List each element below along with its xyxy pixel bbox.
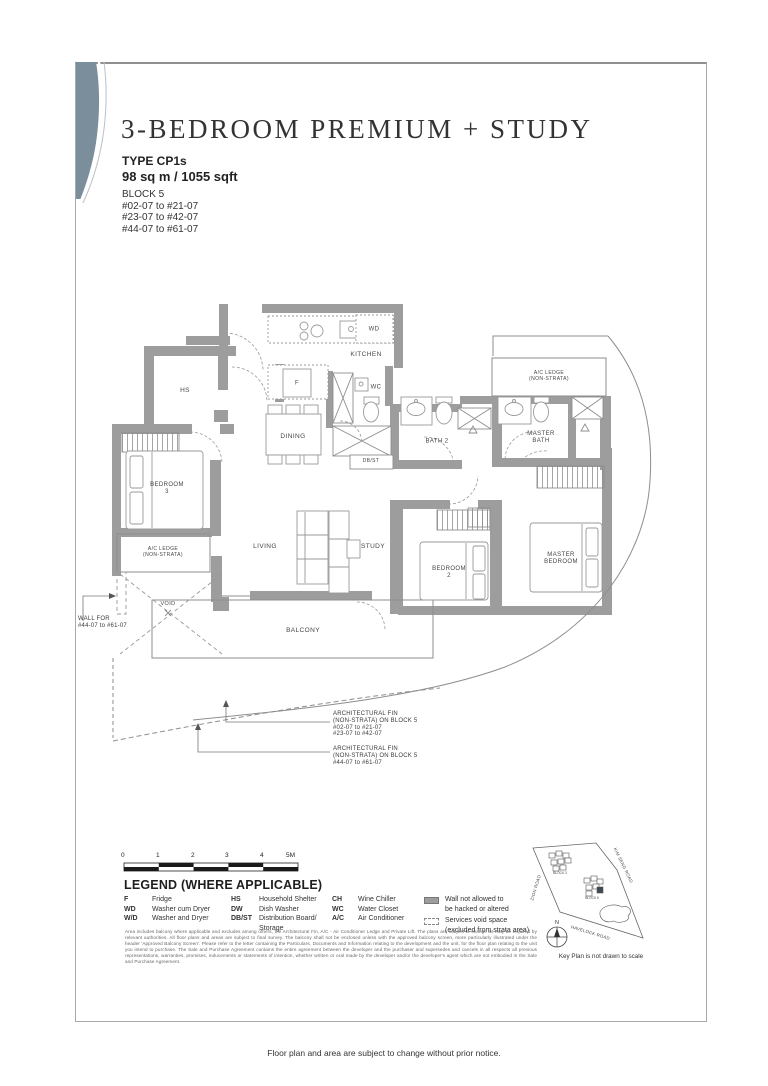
block-info: BLOCK 5 #02-07 to #21-07 #23-07 to #42-0… xyxy=(122,189,198,235)
unit-area: 98 sq m / 1055 sqft xyxy=(122,169,238,184)
wall-note: WALL FOR #44-07 to #61-07 xyxy=(78,616,127,630)
compass-icon: N xyxy=(547,920,567,947)
scale-tick-4: 4 xyxy=(260,852,264,859)
legend-abbr: CH xyxy=(332,895,358,905)
key-plan-note: Key Plan is not drawn to scale xyxy=(559,953,644,960)
legend-desc: Water Closet xyxy=(358,905,398,915)
legend-heading: LEGEND (WHERE APPLICABLE) xyxy=(124,878,322,892)
legend-column-2: HSHousehold Shelter DWDish Washer DB/STD… xyxy=(231,895,317,933)
scale-tick-2: 2 xyxy=(191,852,195,859)
key-plan-road-havelock: HAVELOCK ROAD xyxy=(570,924,610,941)
legend-abbr: HS xyxy=(231,895,259,905)
legend-column-3: CHWine Chiller WCWater Closet A/CAir Con… xyxy=(332,895,404,924)
label-study: STUDY xyxy=(361,543,385,551)
legend-wall-item: Wall not allowed to be hacked or altered xyxy=(445,895,509,914)
legend-desc: Fridge xyxy=(152,895,172,905)
key-plan-block5-label: BLOCK 5 xyxy=(585,896,599,900)
disclaimer-text: Area includes balcony where applicable a… xyxy=(125,929,537,964)
legend-abbr: F xyxy=(124,895,152,905)
unit-range: #44-07 to #61-07 xyxy=(122,224,198,236)
void-area xyxy=(117,572,222,654)
legend-column-1: FFridge WDWasher cum Dryer W/DWasher and… xyxy=(124,895,210,924)
wall-hack-icon xyxy=(424,897,439,904)
label-fridge: F xyxy=(295,380,299,387)
label-ac-ledge-top: A/C LEDGE (NON-STRATA) xyxy=(529,371,569,383)
label-dbst: DB/ST xyxy=(363,459,380,465)
legend-desc: Dish Washer xyxy=(259,905,299,915)
scale-tick-3: 3 xyxy=(225,852,229,859)
key-plan-buildings-block3 xyxy=(549,851,571,871)
legend-abbr: W/D xyxy=(124,914,152,924)
legend-desc: Air Conditioner xyxy=(358,914,404,924)
legend-desc: Household Shelter xyxy=(259,895,317,905)
services-void-icon xyxy=(424,918,439,925)
scale-tick-0: 0 xyxy=(121,852,125,859)
fin-note-upper: ARCHITECTURAL FIN (NON-STRATA) ON BLOCK … xyxy=(333,711,417,738)
label-kitchen: KITCHEN xyxy=(350,351,381,359)
brochure-page: BLOCK 3 BLOCK 5 ZION ROAD KIM SENG ROAD … xyxy=(0,0,768,1086)
legend-desc: Washer cum Dryer xyxy=(152,905,210,915)
scale-tick-5: 5M xyxy=(286,852,295,859)
key-plan-road-zion: ZION ROAD xyxy=(529,874,542,901)
label-washer-dryer: WD xyxy=(369,326,380,333)
block-number: BLOCK 5 xyxy=(122,189,198,201)
scale-tick-1: 1 xyxy=(156,852,160,859)
key-plan-buildings-block5 xyxy=(584,876,603,896)
label-living: LIVING xyxy=(253,543,277,551)
label-bedroom2: BEDROOM 2 xyxy=(432,566,466,580)
label-balcony: BALCONY xyxy=(286,627,320,635)
label-bath2: BATH 2 xyxy=(426,438,449,445)
label-master-bath: MASTER BATH xyxy=(527,431,554,445)
legend-abbr: DW xyxy=(231,905,259,915)
compass-north-label: N xyxy=(555,920,559,926)
legend-abbr: A/C xyxy=(332,914,358,924)
footer-note: Floor plan and area are subject to chang… xyxy=(0,1048,768,1058)
label-dining: DINING xyxy=(280,433,305,441)
key-plan-block3-label: BLOCK 3 xyxy=(553,871,567,875)
label-master-bedroom: MASTER BEDROOM xyxy=(544,552,578,566)
label-household-shelter: HS xyxy=(180,387,190,395)
legend-desc: Washer and Dryer xyxy=(152,914,209,924)
label-wc: WC xyxy=(371,384,382,391)
label-ac-ledge-left: A/C LEDGE (NON-STRATA) xyxy=(143,547,183,559)
legend-abbr: WC xyxy=(332,905,358,915)
fin-note-lower: ARCHITECTURAL FIN (NON-STRATA) ON BLOCK … xyxy=(333,746,417,766)
scale-bar xyxy=(124,863,298,871)
petal-logo-shape xyxy=(76,62,106,203)
unit-type: TYPE CP1s xyxy=(122,154,187,168)
unit-range: #23-07 to #42-07 xyxy=(122,212,198,224)
label-bedroom3: BEDROOM 3 xyxy=(150,482,184,496)
legend-abbr: WD xyxy=(124,905,152,915)
key-plan: BLOCK 3 BLOCK 5 ZION ROAD KIM SENG ROAD … xyxy=(529,843,643,960)
key-plan-park-outline xyxy=(600,905,631,922)
key-plan-road-kimseng: KIM SENG ROAD xyxy=(613,847,634,884)
label-void: VOID xyxy=(160,601,175,607)
page-title: 3-BEDROOM PREMIUM + STUDY xyxy=(121,114,593,145)
legend-desc: Wine Chiller xyxy=(358,895,396,905)
unit-range: #02-07 to #21-07 xyxy=(122,201,198,213)
